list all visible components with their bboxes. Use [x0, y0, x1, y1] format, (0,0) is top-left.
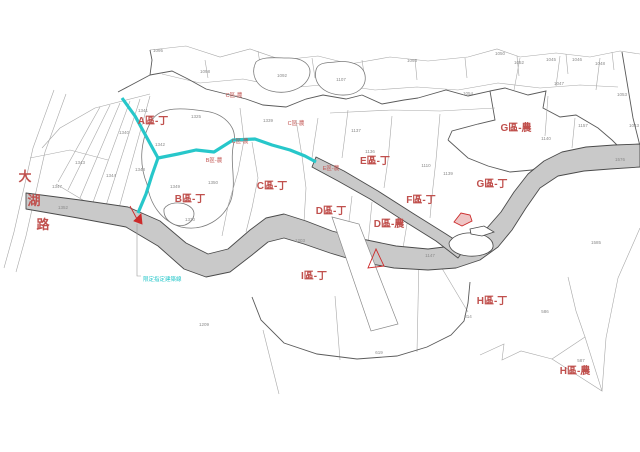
- parcel-number: 1339: [263, 118, 274, 123]
- zone-label: H區-農: [560, 364, 592, 377]
- parcel-number: 1139: [443, 171, 453, 176]
- parcel-number: 1053: [617, 92, 628, 97]
- parcel-number: 1048: [595, 61, 606, 66]
- parcel-number: 1348: [135, 167, 146, 172]
- parcel-number: 1203: [295, 238, 306, 243]
- parcel-number: 1095: [153, 48, 164, 53]
- parcel-number: 1054: [463, 91, 474, 96]
- parcel-number: 1137: [351, 128, 361, 133]
- parcel-number: 1147: [425, 253, 435, 258]
- zone-label: D區-農: [374, 217, 406, 230]
- parcel-number: 1342: [155, 142, 166, 147]
- parcel-number: 1350: [208, 180, 219, 185]
- parcel-number: 1209: [199, 322, 210, 327]
- parcel-number: 1585: [591, 240, 602, 245]
- zone-label: A區-丁: [138, 115, 169, 127]
- cadastral-map: 1095109810921107109310501054105210451046…: [0, 0, 640, 452]
- designated-line-note: 限定指定建築線: [143, 275, 182, 283]
- parcel-number: 1352: [58, 205, 69, 210]
- small-zone-label: C區-農: [226, 91, 243, 99]
- parcel-number: 1343: [75, 160, 86, 165]
- road-name-char: 大: [18, 169, 31, 184]
- road-name-char: 路: [36, 217, 50, 232]
- parcel-number: 1140: [541, 136, 551, 141]
- parcel-number: 1046: [572, 57, 583, 62]
- parcel-number: 1347: [52, 184, 63, 189]
- reserved-strip: [332, 217, 398, 331]
- road-island: [449, 233, 493, 256]
- parcel-number: 1325: [191, 114, 202, 119]
- zone-label: H區-丁: [477, 295, 508, 307]
- parcel-number: 1341: [138, 108, 149, 113]
- parcel-number: 1093: [407, 58, 418, 63]
- zone-label: G區-丁: [476, 178, 507, 190]
- parcel-number: 314: [464, 314, 472, 319]
- parcel-number: 587: [577, 358, 585, 363]
- zone-label: E區-丁: [360, 155, 390, 167]
- zone-label: G區-農: [500, 121, 532, 134]
- note-label-group: 限定指定建築線: [143, 275, 182, 283]
- map-canvas: 1095109810921107109310501054105210451046…: [0, 0, 640, 452]
- parcel-number: 1107: [336, 77, 346, 82]
- parcel-number: 1349: [170, 184, 181, 189]
- parcel-number: 1052: [514, 60, 525, 65]
- parcel-number: 1045: [546, 57, 557, 62]
- parcel-number: 1110: [421, 163, 431, 168]
- road-spot-marker: [454, 213, 472, 226]
- parcel-number: 619: [375, 350, 383, 355]
- small-zone-label: B區-農: [206, 156, 223, 164]
- parcel-number: 1344: [106, 173, 117, 178]
- parcel-number: 1050: [495, 51, 506, 56]
- parcel-number: 1576: [615, 157, 626, 162]
- parcel-number: 1043: [629, 123, 640, 128]
- parcel-number: 1098: [200, 69, 211, 74]
- zone-label: B區-丁: [175, 193, 206, 205]
- small-zone-label: C區-農: [288, 119, 305, 127]
- zone-label: F區-丁: [406, 194, 435, 206]
- parcel-number: 1136: [365, 149, 375, 154]
- zone-label: D區-丁: [316, 205, 347, 217]
- parcel-number: 586: [541, 309, 549, 314]
- small-zone-label: C區-農: [232, 137, 249, 145]
- zone-label: C區-丁: [257, 180, 288, 192]
- road-name-char: 湖: [27, 193, 40, 208]
- small-zone-label: E區-農: [323, 164, 340, 172]
- parcel-number: 1157: [578, 123, 588, 128]
- parcel-number: 1340: [119, 130, 130, 135]
- zone-label: I區-丁: [301, 270, 327, 282]
- parcel-number: 1330: [185, 217, 196, 222]
- parcel-number: 1047: [554, 81, 565, 86]
- parcel-number: 1092: [277, 73, 288, 78]
